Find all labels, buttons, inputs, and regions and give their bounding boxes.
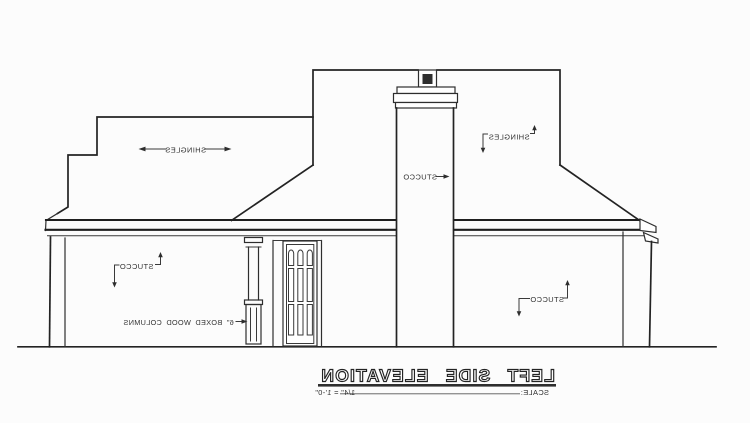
right-wall — [623, 232, 652, 347]
chimney — [394, 70, 458, 347]
label-shingles-right: SHINGLES — [488, 133, 529, 142]
mirrored-text-layer: SHINGLES SHINGLES STUCCO STUCCO STUCCO 6… — [119, 133, 564, 397]
scale-value: 1/4" = 1'-0" — [315, 388, 355, 397]
drawing-sheet: SHINGLES SHINGLES STUCCO STUCCO STUCCO 6… — [0, 0, 750, 423]
left-wall — [50, 237, 66, 347]
chimney-flue — [423, 74, 433, 84]
elevation-drawing: SHINGLES SHINGLES STUCCO STUCCO STUCCO 6… — [0, 0, 750, 423]
leader-arrows — [112, 125, 570, 324]
entry-door — [283, 241, 317, 346]
eave-band — [46, 214, 659, 244]
roof-outline — [58, 70, 642, 222]
label-stucco-chimney: STUCCO — [403, 173, 437, 182]
label-boxed-wood-columns: 6" BOXED WOOD COLUMNS — [123, 318, 234, 327]
label-stucco-right-wall: STUCCO — [530, 295, 564, 304]
scale-label: SCALE: — [521, 388, 549, 397]
label-stucco-left-wall: STUCCO — [119, 262, 153, 271]
porch-column — [245, 238, 263, 345]
drawing-title: LEFT SIDE ELEVATION — [320, 366, 555, 386]
label-shingles-left: SHINGLES — [165, 146, 206, 155]
